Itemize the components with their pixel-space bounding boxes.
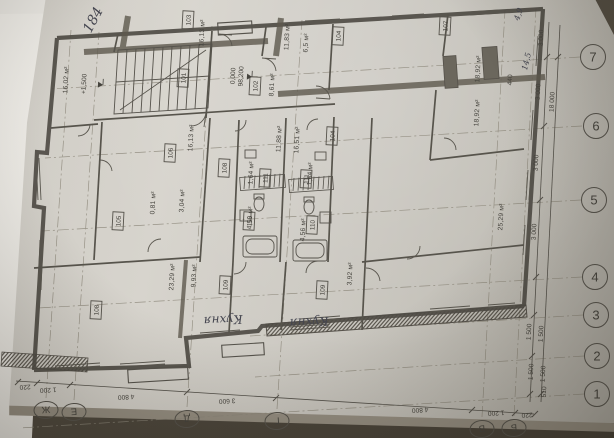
dimension-value: 3 600 (218, 396, 235, 404)
room-area-label: 16,02 м² (62, 66, 70, 94)
dimension-value: 440 (507, 74, 515, 86)
grid-axis-bubble: Г (264, 412, 289, 431)
elevation-mark: 0,00098,200 (229, 65, 252, 87)
room-number-tag: 104 (326, 127, 338, 146)
room-number-tag: 102 (249, 77, 261, 96)
room-area-label: 16,51 м² (293, 126, 301, 154)
floorplan-drawing: 16,02 м²16,13 м²11,83 м²6,5 м²8,61 м²11,… (0, 0, 614, 438)
room-number: 110 (309, 219, 317, 230)
axis-letter: Ж (41, 403, 51, 415)
axis-number: 2 (593, 349, 600, 364)
staircase (114, 44, 212, 114)
grid-axis-bubble: 5 (582, 188, 607, 213)
room-number-tag: 110 (306, 216, 318, 235)
grid-axis-bubble: 4 (583, 265, 608, 290)
room-area-label: 16,13 м² (198, 19, 206, 47)
dimension-value: 1 500 (540, 365, 548, 382)
axis-letter: Б (510, 421, 517, 432)
grid-axis-bubble: 2 (585, 344, 610, 369)
dimension-value: 510 (541, 386, 549, 398)
room-number-tag: 109 (219, 276, 231, 295)
dimension-value: 4 800 (117, 392, 134, 400)
dimension-value: 1 200 (487, 408, 504, 416)
axis-letter: В (478, 422, 485, 433)
room-area-label: 16,13 м² (187, 124, 195, 152)
axis-number: 3 (592, 308, 599, 323)
room-area-label: 25,29 м² (497, 203, 505, 231)
dimension-value: 3 000 (533, 154, 541, 171)
axis-letter: Д (183, 412, 191, 423)
dimension-value: 3 000 (531, 223, 539, 240)
grid-axis-bubble: 3 (584, 303, 609, 328)
room-number: 106 (167, 147, 175, 158)
room-number: 107 (442, 20, 450, 31)
room-number: 101 (180, 72, 188, 83)
room-number: 105 (115, 215, 123, 226)
axis-letter: Г (274, 414, 280, 425)
room-area-label: 8,61 м² (268, 73, 276, 97)
room-number: 110 (246, 215, 254, 226)
room-area-label: 6,5 м² (303, 33, 311, 53)
photo-of-floorplan: 16,02 м²16,13 м²11,83 м²6,5 м²8,61 м²11,… (0, 0, 614, 438)
dimension-value: 220 (19, 383, 31, 391)
elevation-value: 0,000 (230, 67, 238, 84)
room-area-label: 18,92 м² (473, 99, 481, 127)
grid-axis-bubble: Е (61, 403, 86, 422)
elevation-value: +1,500 (80, 73, 88, 94)
elevation-mark: +1,500 (80, 73, 103, 95)
elevation-triangle-icon (98, 82, 103, 88)
dimension-value: 1 200 (39, 385, 56, 393)
room-number: 108 (221, 162, 229, 173)
handwritten-note: 184 (80, 5, 107, 36)
grid-axis-bubble: Ж (33, 401, 58, 420)
axis-number: 7 (589, 50, 596, 65)
room-number: 109 (222, 279, 230, 290)
dimension-value: 4 800 (411, 405, 428, 413)
room-number-tag: 108 (218, 159, 230, 178)
room-area-label: 1,64 м² (247, 161, 255, 185)
room-area-label: 11,83 м² (283, 23, 291, 50)
grid-axis-bubble: 7 (581, 45, 606, 70)
room-area-label: 9,93 м² (190, 264, 198, 288)
axis-number: 6 (592, 119, 599, 134)
room-number-tag: 106 (164, 144, 176, 163)
dimension-value: 220 (521, 411, 533, 419)
grid-axis-bubble: 1 (585, 382, 610, 407)
room-number: 104 (329, 130, 337, 141)
axis-letter: Е (70, 405, 77, 416)
room-number-tag: 105 (112, 212, 124, 231)
handwritten-note: 14,5 (520, 52, 533, 71)
axis-number: 5 (590, 193, 597, 208)
room-number-tag: 103 (182, 11, 194, 30)
grid-axis-bubble: Б (501, 419, 526, 438)
dimension-value: 3 000 (538, 29, 546, 46)
room-number: 104 (335, 30, 343, 41)
dimension-value: 1 500 (526, 323, 534, 340)
room-area-label: 18,92 м² (474, 55, 482, 83)
dimension-value: 18 000 (548, 91, 556, 112)
room-number-tag: 109 (316, 281, 328, 300)
dimension-value: 1 500 (538, 325, 546, 342)
room-number: 111 (262, 173, 270, 184)
room-area-label: 3,92 м² (346, 262, 354, 286)
room-number: 108 (93, 304, 101, 315)
room-area-label: 11,88 м² (275, 125, 283, 152)
handwritten-note: Кухня (289, 314, 330, 330)
room-area-label: 0,81 м² (149, 191, 157, 215)
room-number: 109 (319, 284, 327, 295)
handwritten-note: Кухня (203, 312, 244, 328)
room-number-tag: 104 (332, 27, 344, 46)
room-number: 103 (185, 14, 193, 25)
room-area-label: 23,29 м² (168, 263, 176, 291)
grid-axis-bubble: 6 (584, 114, 609, 139)
elevation-value: 98,200 (237, 66, 245, 87)
room-number-tag: 108 (90, 301, 102, 320)
room-number: 102 (252, 80, 260, 91)
axis-number: 1 (593, 387, 600, 402)
dimension-value: 1 500 (528, 363, 536, 380)
room-area-label: 3,04 м² (178, 189, 186, 213)
grid-axis-bubble: В (469, 420, 494, 438)
room-number: 111 (303, 174, 311, 185)
dimension-value: 3 000 (535, 83, 543, 100)
axis-number: 4 (591, 270, 598, 285)
grid-axis-bubble: Д (174, 410, 199, 429)
